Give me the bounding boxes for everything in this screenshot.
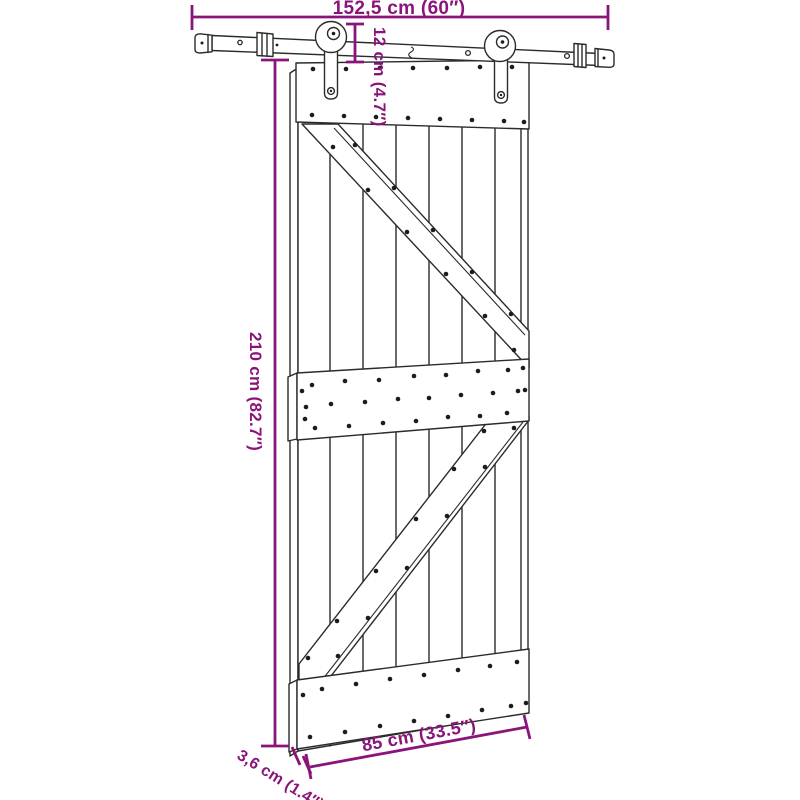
screw-dot — [445, 66, 450, 71]
screw-dot — [522, 120, 527, 125]
screw-dot — [509, 312, 514, 317]
screw-dot — [388, 677, 393, 682]
screw-dot — [313, 426, 318, 431]
rail-hole — [466, 51, 471, 56]
screw-dot — [311, 67, 316, 72]
screw-dot — [483, 314, 488, 319]
screw-dot — [444, 373, 449, 378]
screw-dot — [343, 730, 348, 735]
screw-dot — [446, 415, 451, 420]
screw-dot — [343, 379, 348, 384]
screw-dot — [512, 348, 517, 353]
screw-dot — [478, 65, 483, 70]
dim-door-height: 210 cm (82.7″) — [246, 60, 289, 746]
screw-dot — [478, 414, 483, 419]
rail-hole — [238, 40, 242, 44]
middle-batten-end-face — [288, 373, 297, 441]
screw-dot — [406, 116, 411, 121]
screw-dot — [363, 400, 368, 405]
screw-dot — [320, 687, 325, 692]
dimension-label-door-height: 210 cm (82.7″) — [246, 332, 265, 451]
screw-dot — [427, 396, 432, 401]
dimension-label-door-thickness: 3,6 cm (1.4″) — [234, 747, 327, 800]
screw-dot — [515, 660, 520, 665]
screw-dot — [301, 693, 306, 698]
screw-dot — [308, 735, 313, 740]
screw-dot — [459, 393, 464, 398]
screw-dot — [344, 67, 349, 72]
rail-end-cap-left — [195, 34, 212, 53]
screw-dot — [470, 270, 475, 275]
screw-dot — [521, 366, 526, 371]
wheel-axle-left — [332, 32, 336, 36]
screw-dot — [491, 391, 496, 396]
screw-dot — [377, 378, 382, 383]
screw-dot — [444, 272, 449, 277]
barn-door — [288, 60, 529, 756]
screw-dot — [452, 467, 457, 472]
screw-dot — [524, 701, 529, 706]
screw-dot — [405, 230, 410, 235]
screw-dot — [396, 397, 401, 402]
screw-dot — [516, 389, 521, 394]
screw-dot — [446, 714, 451, 719]
screw-dot — [502, 119, 507, 124]
screw-dot — [300, 389, 305, 394]
rail-hole — [565, 54, 570, 59]
screw-dot — [405, 566, 410, 571]
screw-dot — [353, 143, 358, 148]
screw-dot — [336, 654, 341, 659]
screw-dot — [482, 429, 487, 434]
screw-dot — [488, 664, 493, 669]
screw-dot — [523, 388, 528, 393]
screw-dot — [381, 421, 386, 426]
rail-connector-left — [257, 33, 273, 57]
strap-bolt-left-pin — [330, 90, 332, 92]
diagram-canvas: 152,5 cm (60″) 12 cm (4.7″) 210 cm (82.7… — [0, 0, 800, 800]
screw-dot — [303, 417, 308, 422]
screw-dot — [392, 186, 397, 191]
rail-cap-right-pin — [603, 57, 606, 60]
screw-dot — [505, 411, 510, 416]
dimension-label-rail-length: 152,5 cm (60″) — [333, 0, 466, 19]
dim-door-thickness: 3,6 cm (1.4″) — [234, 747, 327, 800]
screw-dot — [342, 114, 347, 119]
screw-dot — [354, 682, 359, 687]
screw-dot — [483, 465, 488, 470]
screw-dot — [378, 724, 383, 729]
rail-connector-pin — [276, 44, 279, 47]
screw-dot — [438, 117, 443, 122]
screw-dot — [431, 228, 436, 233]
screw-dot — [422, 673, 427, 678]
screw-dot — [366, 616, 371, 621]
screw-dot — [310, 383, 315, 388]
screw-dot — [480, 708, 485, 713]
screw-dot — [414, 419, 419, 424]
screw-dot — [412, 719, 417, 724]
wheel-axle-right — [501, 40, 505, 44]
screw-dot — [347, 424, 352, 429]
screw-dot — [304, 405, 309, 410]
rail-cap-left-pin — [201, 42, 204, 45]
screw-dot — [506, 368, 511, 373]
screw-dot — [445, 514, 450, 519]
screw-dot — [329, 402, 334, 407]
screw-dot — [476, 369, 481, 374]
screw-dot — [411, 66, 416, 71]
screw-dot — [331, 145, 336, 150]
screw-dot — [374, 569, 379, 574]
strap-bolt-right-pin — [500, 94, 502, 96]
screw-dot — [414, 517, 419, 522]
dim-rail-length: 152,5 cm (60″) — [192, 0, 608, 30]
barn-door-dimension-diagram: 152,5 cm (60″) 12 cm (4.7″) 210 cm (82.7… — [0, 0, 800, 800]
screw-dot — [366, 188, 371, 193]
screw-dot — [510, 65, 515, 70]
dimension-label-hanger-drop: 12 cm (4.7″) — [370, 27, 389, 127]
screw-dot — [335, 619, 340, 624]
screw-dot — [310, 113, 315, 118]
screw-dot — [412, 374, 417, 379]
screw-dot — [512, 426, 517, 431]
rail-connector-right — [574, 44, 586, 68]
bottom-batten-end-face — [289, 680, 297, 752]
screw-dot — [509, 704, 514, 709]
screw-dot — [470, 118, 475, 123]
screw-dot — [456, 668, 461, 673]
screw-dot — [306, 656, 311, 661]
